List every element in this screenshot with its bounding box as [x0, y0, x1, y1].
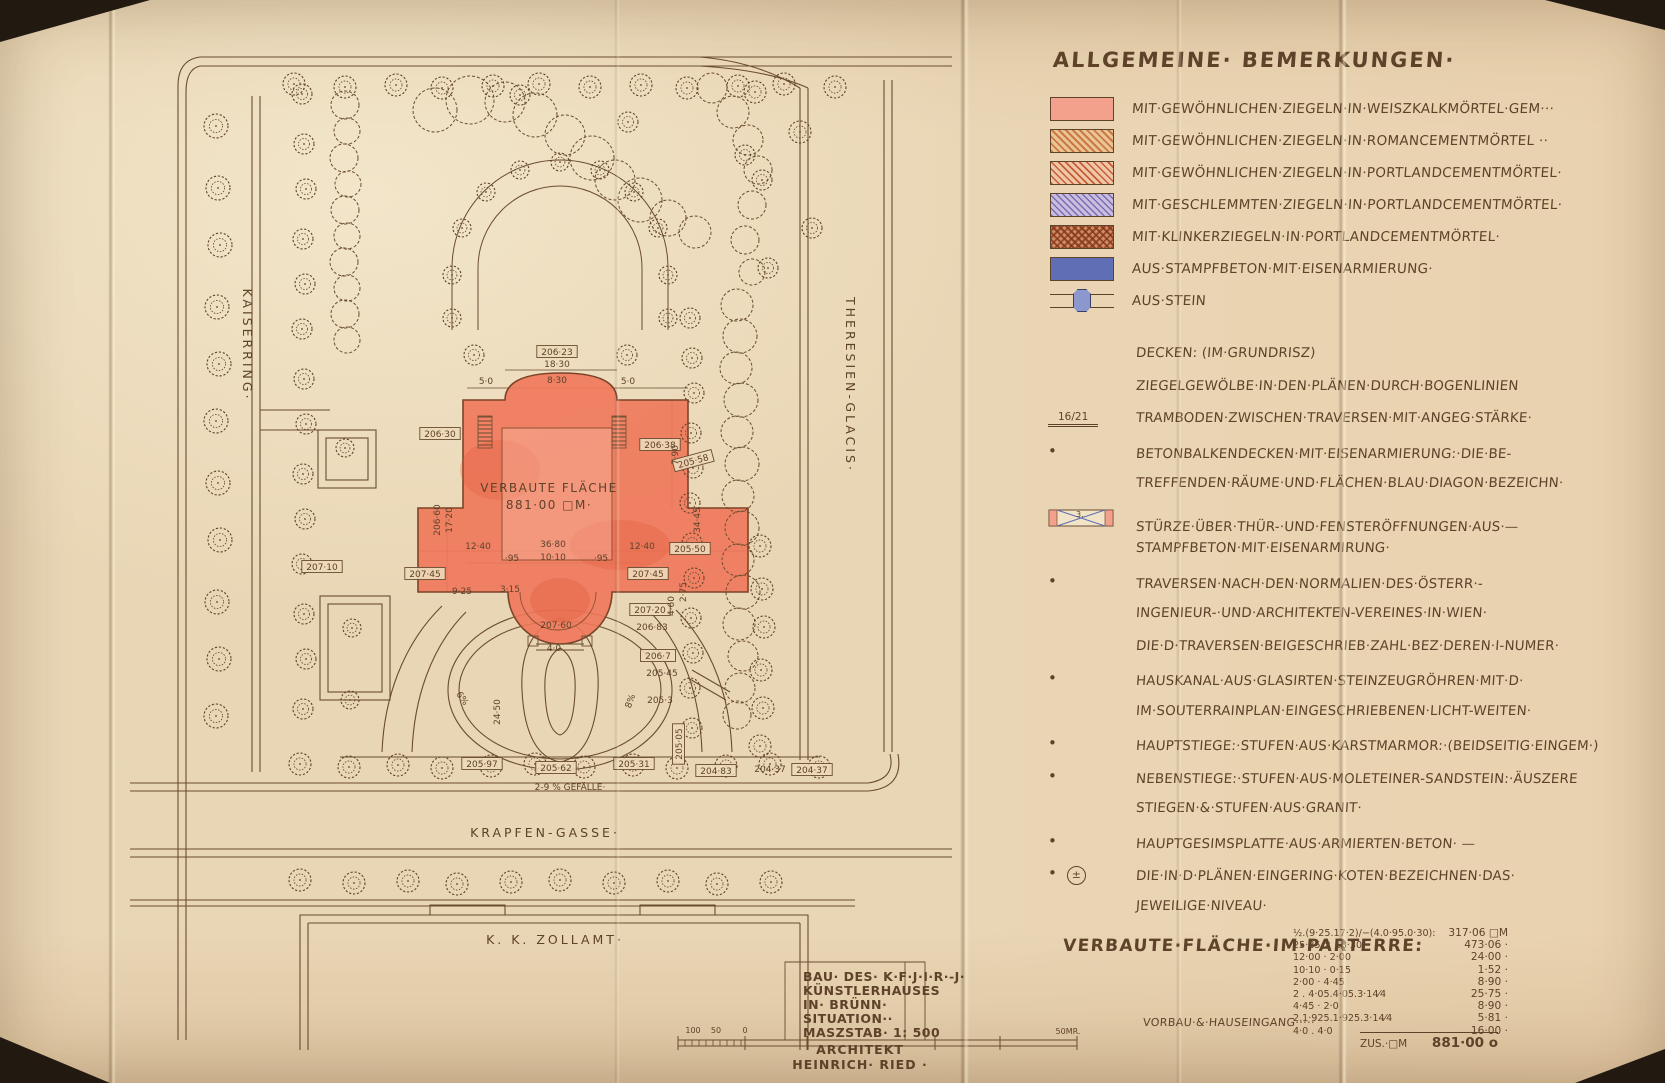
scalebar-tick-50: 50	[711, 1026, 721, 1035]
plan-dimension-label: 3·15	[500, 585, 520, 595]
note-text: TRAMBODEN·ZWISCHEN·TRAVERSEN·MIT·ANGEG·S…	[1135, 411, 1532, 426]
tree-icon	[551, 153, 569, 171]
plan-elevation-label: 204·83	[700, 767, 732, 777]
area-calculation: ½.(9·25.17·2)/−(4.0·95.0·30):317·06 □M25…	[1293, 927, 1508, 1037]
hedge-icon	[595, 160, 635, 200]
tree-icon	[676, 77, 698, 99]
hedge-icon	[723, 608, 755, 640]
note-text: DIE·IN·D·PLÄNEN·EINGERING·KOTEN·BEZEICHN…	[1135, 869, 1515, 884]
legend-label: AUS·STAMPFBETON·MIT·EISENARMIERUNG·	[1131, 261, 1433, 277]
plan-dimension-label: 4·0	[547, 644, 562, 654]
note-text: STAMPFBETON·MIT·EISENARMIRUNG·	[1135, 541, 1390, 556]
tree-icon	[630, 74, 652, 96]
scalebar-tick-100: 100	[685, 1026, 700, 1035]
title-block-line: SITUATION··	[803, 1012, 933, 1026]
tree-icon	[289, 753, 311, 775]
tree-icon	[753, 616, 775, 638]
plan-dimension-label: ·95	[505, 554, 519, 564]
note-text: ZIEGELGEWÖLBE·IN·DEN·PLÄNEN·DURCH·BOGENL…	[1135, 379, 1519, 394]
note-text: JEWEILIGE·NIVEAU·	[1135, 899, 1267, 914]
note-text: NEBENSTIEGE:·STUFEN·AUS·MOLETEINER-SANDS…	[1135, 772, 1578, 787]
legend: MIT·GEWÖHNLICHEN·ZIEGELN·IN·WEISZKALKMÖR…	[1050, 96, 1562, 320]
legend-item: MIT·KLINKERZIEGELN·IN·PORTLANDCEMENTMÖRT…	[1050, 224, 1562, 249]
vorbau-label: VORBAU·&·HAUSEINGANG·····	[1143, 1016, 1316, 1029]
calc-expression: ½.(9·25.17·2)/−(4.0·95.0·30):	[1293, 928, 1436, 939]
hedge-icon	[679, 216, 711, 248]
plan-dimension-label: 9·25	[452, 587, 472, 597]
tree-icon	[680, 308, 700, 328]
legend-item: AUS·STEIN	[1050, 288, 1562, 313]
hedge-icon	[724, 383, 758, 417]
plan-dimension-label: 8%	[624, 692, 638, 709]
hedge-icon	[723, 701, 751, 729]
plan-dimension-label: 12·40	[465, 542, 491, 552]
plan-elevation-label: 207·20	[634, 606, 666, 616]
legend-swatch-solid-blue	[1050, 257, 1114, 281]
tree-icon	[752, 170, 772, 190]
plan-dimension-label: 17·20	[445, 507, 455, 533]
plan-dimension-label: ·95	[594, 554, 608, 564]
calc-expression: 12·00 · 2·00	[1293, 952, 1433, 963]
legend-swatch-hatch-orange	[1050, 129, 1114, 153]
tree-icon	[773, 73, 795, 95]
note-marker: •	[1040, 572, 1136, 590]
tree-icon	[205, 295, 229, 319]
plan-dimension-label: 2-9 % GEFÄLLE·	[535, 782, 606, 793]
drawing-sheet: 206·23206·30206·38205·58207·45207·45205·…	[0, 0, 1665, 1083]
plan-elevation-label: 205·31	[618, 760, 650, 770]
tree-icon	[579, 76, 601, 98]
plan-dimension-label: 206·60	[433, 504, 443, 536]
hedge-icon	[413, 88, 457, 132]
hedge-icon	[697, 73, 727, 103]
hedge-icon	[330, 248, 358, 276]
notes-list: DECKEN: (IM·GRUNDRISZ)ZIEGELGEWÖLBE·IN·D…	[1040, 346, 1660, 931]
tree-icon	[758, 258, 778, 278]
calc-row: 4·45 · 2·08·90 ·	[1293, 1000, 1508, 1012]
lintel-number: 3.	[1076, 510, 1084, 519]
tree-icon	[528, 73, 550, 95]
tree-icon	[296, 649, 316, 669]
tree-icon	[749, 535, 771, 557]
tree-icon	[750, 659, 772, 681]
legend-item: MIT·GEWÖHNLICHEN·ZIEGELN·IN·WEISZKALKMÖR…	[1050, 96, 1562, 121]
plan-elevation-label: 205·62	[540, 764, 572, 774]
tree-icon	[294, 369, 314, 389]
tree-icon	[293, 229, 313, 249]
plan-dimension-label: 207·60	[540, 621, 572, 631]
calc-row: ½.(9·25.17·2)/−(4.0·95.0·30):317·06 □M	[1293, 927, 1508, 939]
hedge-icon	[725, 673, 755, 703]
area-total-value: 881·00 o	[1418, 1035, 1498, 1051]
plan-elevation-label: 206·7	[645, 652, 671, 662]
calc-value: 473·06 ·	[1433, 939, 1508, 951]
note-text: HAUSKANAL·AUS·GLASIRTEN·STEINZEUGRÖHREN·…	[1135, 674, 1523, 689]
legend-label: MIT·GEWÖHNLICHEN·ZIEGELN·IN·WEISZKALKMÖR…	[1131, 101, 1554, 117]
calc-row: 12·00 · 2·0024·00 ·	[1293, 951, 1508, 963]
title-block-line: BAU· DES· K·F·J·I·R·-J·	[803, 970, 933, 984]
plan-elevation-label: 204·37	[796, 766, 828, 776]
tree-icon	[294, 604, 314, 624]
plan-elevation-label: 205·50	[674, 545, 706, 555]
note-row: STAMPFBETON·MIT·EISENARMIRUNG·	[1040, 541, 1660, 574]
tree-icon	[477, 183, 495, 201]
note-row: •TRAVERSEN·NACH·DEN·NORMALIEN·DES·ÖSTERR…	[1040, 574, 1660, 607]
plan-dimension-label: 205·3	[647, 696, 673, 706]
hedge-icon	[725, 447, 759, 481]
plan-elevation-label: 206·23	[541, 348, 573, 358]
hedge-icon	[720, 352, 752, 384]
tree-icon	[204, 409, 228, 433]
hedge-icon	[335, 171, 361, 197]
tree-icon	[343, 619, 361, 637]
building-area-label-line1: VERBAUTE FLÄCHE	[480, 480, 617, 495]
legend-item: MIT·GEWÖHNLICHEN·ZIEGELN·IN·ROMANCEMENTM…	[1050, 128, 1562, 153]
calc-value: 8·90 ·	[1433, 1000, 1508, 1012]
note-text: TREFFENDEN·RÄUME·UND·FLÄCHEN·BLAU·DIAGON…	[1135, 476, 1563, 491]
note-text: HAUPTGESIMSPLATTE·AUS·ARMIERTEN·BETON· —	[1135, 837, 1475, 852]
calc-value: 1·52 ·	[1433, 964, 1508, 976]
plan-elevation-label: 207·10	[306, 563, 338, 573]
tree-icon	[802, 218, 822, 238]
tree-icon	[482, 75, 504, 97]
note-marker: •	[1040, 669, 1136, 687]
tree-icon	[204, 704, 228, 728]
hedge-icon	[545, 115, 585, 155]
plan-dimension-label: 4·60	[667, 596, 677, 616]
tree-icon	[431, 757, 453, 779]
bullet-icon: •	[1048, 767, 1057, 785]
note-text: INGENIEUR-·UND·ARCHITEKTEN-VEREINES·IN·W…	[1135, 606, 1487, 621]
note-row: INGENIEUR-·UND·ARCHITEKTEN-VEREINES·IN·W…	[1040, 606, 1660, 639]
plan-dimension-label: 7·90	[671, 445, 681, 465]
plan-elevation-label: 205·05	[675, 728, 685, 760]
building-area-label-line2: 881·00 □M·	[506, 498, 592, 512]
tree-icon	[208, 233, 232, 257]
tree-icon	[296, 179, 316, 199]
tree-icon	[603, 872, 625, 894]
tree-icon	[338, 756, 360, 778]
tree-icon	[206, 176, 230, 200]
plan-dimension-label: 36·80	[540, 540, 566, 550]
title-block: BAU· DES· K·F·J·I·R·-J· KÜNSTLERHAUSES I…	[803, 970, 933, 1040]
hedge-icon	[513, 93, 557, 137]
calc-expression: 25·85 × 18·30	[1293, 940, 1433, 951]
note-marker: •±	[1040, 864, 1136, 885]
plan-dimension-label: 204·37	[754, 765, 786, 775]
stone-symbol	[1073, 289, 1091, 312]
note-text: IM·SOUTERRAINPLAN·EINGESCHRIEBENEN·LICHT…	[1135, 704, 1531, 719]
tree-icon	[343, 872, 365, 894]
architect-line2: HEINRICH· RIED ·	[770, 1057, 950, 1072]
legend-swatch-hatch-red	[1050, 161, 1114, 185]
bullet-icon: •	[1048, 572, 1057, 590]
hedge-icon	[331, 196, 359, 224]
plan-dimension-label: 6%	[453, 690, 470, 708]
tree-icon	[617, 345, 637, 365]
tree-icon	[706, 873, 728, 895]
beam-depth-marker: 16/21	[1048, 411, 1098, 427]
plan-dimension-label: 18·30	[544, 360, 570, 370]
plusminus-icon: ±	[1067, 866, 1086, 885]
calc-row: 2.1·925.1·925.3·14⁄45·81 ·	[1293, 1012, 1508, 1024]
tree-icon	[292, 319, 312, 339]
scalebar-right-label: 50MR.	[1056, 1027, 1081, 1036]
architect-signature: ARCHITEKT HEINRICH· RIED ·	[770, 1042, 950, 1072]
note-row: DIE·D·TRAVERSEN·BEIGESCHRIEB·ZAHL·BEZ·DE…	[1040, 639, 1660, 672]
calc-row: 10·10 · 0·151·52 ·	[1293, 964, 1508, 976]
hedge-icon	[717, 96, 749, 128]
note-text: DIE·D·TRAVERSEN·BEIGESCHRIEB·ZAHL·BEZ·DE…	[1135, 639, 1559, 654]
note-marker: 16/21	[1040, 409, 1136, 423]
calc-row: 2 . 4·05.4·05.3·14⁄425·75 ·	[1293, 988, 1508, 1000]
legend-swatch-solid-pink	[1050, 97, 1114, 121]
legend-item: AUS·STAMPFBETON·MIT·EISENARMIERUNG·	[1050, 256, 1562, 281]
hedge-icon	[728, 641, 758, 671]
note-text: STÜRZE·ÜBER·THÜR-·UND·FENSTERÖFFNUNGEN·A…	[1135, 520, 1518, 535]
scalebar-tick-0: 0	[742, 1026, 747, 1035]
tree-icon	[735, 145, 755, 165]
hedge-icon	[331, 91, 359, 119]
plan-dimension-label: 2·75	[679, 582, 689, 602]
tree-icon	[336, 439, 354, 457]
note-row: •HAUPTSTIEGE:·STUFEN·AUS·KARSTMARMOR:·(B…	[1040, 736, 1660, 769]
zollamt-label: K. K. ZOLLAMT·	[486, 932, 624, 947]
note-text: BETONBALKENDECKEN·MIT·EISENARMIERUNG:·DI…	[1135, 447, 1512, 462]
note-row: TREFFENDEN·RÄUME·UND·FLÄCHEN·BLAU·DIAGON…	[1040, 476, 1660, 509]
note-text: STIEGEN·&·STUFEN·AUS·GRANIT·	[1135, 801, 1362, 816]
hedge-icon	[723, 319, 757, 353]
tree-icon	[760, 871, 782, 893]
plan-dimension-label: 205·45	[646, 669, 678, 679]
calc-value: 8·90 ·	[1433, 976, 1508, 988]
street-label-krapfen-gasse: KRAPFEN-GASSE·	[470, 825, 620, 840]
note-row: 3.STÜRZE·ÜBER·THÜR-·UND·FENSTERÖFFNUNGEN…	[1040, 509, 1660, 542]
tree-icon	[295, 509, 315, 529]
plan-dimension-label: 206·83	[636, 623, 668, 633]
note-row: STIEGEN·&·STUFEN·AUS·GRANIT·	[1040, 801, 1660, 834]
note-text: TRAVERSEN·NACH·DEN·NORMALIEN·DES·ÖSTERR·…	[1135, 577, 1483, 592]
calc-expression: 10·10 · 0·15	[1293, 965, 1433, 976]
tree-icon	[207, 647, 231, 671]
tree-icon	[683, 643, 703, 663]
plan-dimension-label: 5·0	[479, 377, 494, 387]
note-text: HAUPTSTIEGE:·STUFEN·AUS·KARSTMARMOR:·(BE…	[1135, 739, 1599, 754]
tree-icon	[293, 464, 313, 484]
hedge-icon	[334, 327, 360, 353]
legend-swatch-stein	[1050, 289, 1114, 313]
tree-icon	[657, 870, 679, 892]
legend-item: MIT·GESCHLEMMTEN·ZIEGELN·IN·PORTLANDCEME…	[1050, 192, 1562, 217]
hedge-icon	[721, 289, 753, 321]
tree-icon	[446, 873, 468, 895]
tree-icon	[283, 73, 305, 95]
tree-icon	[500, 871, 522, 893]
hedge-icon	[334, 223, 360, 249]
note-marker: •	[1040, 442, 1136, 460]
plan-dimension-label: 24·50	[493, 699, 503, 725]
tree-icon	[205, 590, 229, 614]
tree-icon	[618, 112, 638, 132]
note-marker: •	[1040, 734, 1136, 752]
tree-icon	[296, 414, 316, 434]
hedge-icon	[721, 416, 753, 448]
calc-value: 25·75 ·	[1433, 988, 1508, 1000]
plan-dimension-label: 34·45	[693, 507, 703, 533]
calc-expression: 2.1·925.1·925.3·14⁄4	[1293, 1013, 1433, 1024]
tree-icon	[289, 869, 311, 891]
tree-icon	[549, 869, 571, 891]
plan-dimension-label: 8·30	[547, 376, 567, 386]
plan-dimension-label: 10·10	[540, 553, 566, 563]
bullet-icon: •	[1048, 442, 1057, 460]
legend-label: MIT·KLINKERZIEGELN·IN·PORTLANDCEMENTMÖRT…	[1131, 229, 1500, 245]
hedge-icon	[446, 76, 494, 124]
tree-icon	[464, 345, 484, 365]
tree-icon	[397, 870, 419, 892]
legend-item: MIT·GEWÖHNLICHEN·ZIEGELN·IN·PORTLANDCEME…	[1050, 160, 1562, 185]
bullet-icon: •	[1048, 864, 1057, 882]
note-marker: •	[1040, 832, 1136, 850]
tree-icon	[334, 76, 356, 98]
architect-line1: ARCHITEKT	[770, 1042, 950, 1057]
plan-dimension-label: 5·0	[621, 377, 636, 387]
page-title: ALLGEMEINE· BEMERKUNGEN·	[1052, 48, 1456, 72]
legend-label: MIT·GEWÖHNLICHEN·ZIEGELN·IN·PORTLANDCEME…	[1131, 165, 1562, 181]
note-row: •±DIE·IN·D·PLÄNEN·EINGERING·KOTEN·BEZEIC…	[1040, 866, 1660, 899]
calc-value: 24·00 ·	[1433, 951, 1508, 963]
tree-icon	[510, 85, 530, 105]
hedge-icon	[731, 226, 759, 254]
hedge-icon	[331, 300, 359, 328]
calc-expression: 2 . 4·05.4·05.3·14⁄4	[1293, 989, 1433, 1000]
legend-label: AUS·STEIN	[1131, 293, 1206, 309]
legend-label: MIT·GESCHLEMMTEN·ZIEGELN·IN·PORTLANDCEME…	[1131, 197, 1562, 213]
plan-elevation-label: 207·45	[409, 570, 441, 580]
note-marker: 3.	[1040, 507, 1136, 532]
title-block-line: IN· BRÜNN·	[803, 998, 933, 1012]
tree-icon	[385, 74, 407, 96]
tree-icon	[744, 81, 766, 103]
note-row: •HAUPTGESIMSPLATTE·AUS·ARMIERTEN·BETON· …	[1040, 834, 1660, 867]
tree-icon	[206, 471, 230, 495]
calc-value: 5·81 ·	[1433, 1012, 1508, 1024]
title-block-line: MASZSTAB· 1: 500	[803, 1026, 933, 1040]
legend-label: MIT·GEWÖHNLICHEN·ZIEGELN·IN·ROMANCEMENTM…	[1131, 133, 1548, 149]
bullet-icon: •	[1048, 669, 1057, 687]
legend-swatch-hatch-violet	[1050, 193, 1114, 217]
note-row: 16/21TRAMBODEN·ZWISCHEN·TRAVERSEN·MIT·AN…	[1040, 411, 1660, 444]
tree-icon	[294, 134, 314, 154]
plan-elevation-label: 206·30	[424, 430, 456, 440]
note-marker: •	[1040, 767, 1136, 785]
note-row: •NEBENSTIEGE:·STUFEN·AUS·MOLETEINER-SAND…	[1040, 769, 1660, 802]
bullet-icon: •	[1048, 734, 1057, 752]
note-row: •BETONBALKENDECKEN·MIT·EISENARMIERUNG:·D…	[1040, 444, 1660, 477]
plan-elevation-label: 205·97	[466, 760, 498, 770]
tree-icon	[824, 76, 846, 98]
note-row: IM·SOUTERRAINPLAN·EINGESCHRIEBENEN·LICHT…	[1040, 704, 1660, 737]
lintel-symbol: 3.	[1048, 507, 1114, 529]
hedge-icon	[738, 191, 766, 219]
plan-elevation-label: 207·45	[632, 570, 664, 580]
hedge-icon	[334, 275, 360, 301]
plan-dimension-label: 12·40	[629, 542, 655, 552]
area-total-label: ZUS.·□M	[1360, 1038, 1418, 1050]
hedge-icon	[334, 118, 360, 144]
tree-icon	[752, 697, 774, 719]
tree-icon	[204, 114, 228, 138]
calc-row: 25·85 × 18·30473·06 ·	[1293, 939, 1508, 951]
hedge-icon	[330, 144, 358, 172]
tree-icon	[293, 699, 313, 719]
bullet-icon: •	[1048, 832, 1057, 850]
note-row: DECKEN: (IM·GRUNDRISZ)	[1040, 346, 1660, 379]
tree-icon	[682, 348, 702, 368]
note-text: DECKEN: (IM·GRUNDRISZ)	[1135, 346, 1316, 361]
note-row: ZIEGELGEWÖLBE·IN·DEN·PLÄNEN·DURCH·BOGENL…	[1040, 379, 1660, 412]
tree-icon	[292, 84, 312, 104]
tree-icon	[295, 274, 315, 294]
calc-expression: 4·45 · 2·0	[1293, 1001, 1433, 1012]
calc-expression: 2·00 · 4·45	[1293, 977, 1433, 988]
street-label-theresien-glacis: THERESIEN-GLACIS·	[843, 296, 858, 473]
tree-icon	[208, 528, 232, 552]
title-block-line: KÜNSTLERHAUSES	[803, 984, 933, 998]
note-row: •HAUSKANAL·AUS·GLASIRTEN·STEINZEUGRÖHREN…	[1040, 671, 1660, 704]
area-total-row: ZUS.·□M 881·00 o	[1360, 1032, 1498, 1051]
legend-swatch-cross-klinker	[1050, 225, 1114, 249]
hedge-icon	[739, 259, 765, 285]
street-label-kaiserring: KAISERRING·	[240, 288, 255, 401]
calc-row: 2·00 · 4·458·90 ·	[1293, 976, 1508, 988]
calc-value: 317·06 □M	[1436, 927, 1508, 939]
tree-icon	[207, 352, 231, 376]
tree-icon	[751, 578, 773, 600]
